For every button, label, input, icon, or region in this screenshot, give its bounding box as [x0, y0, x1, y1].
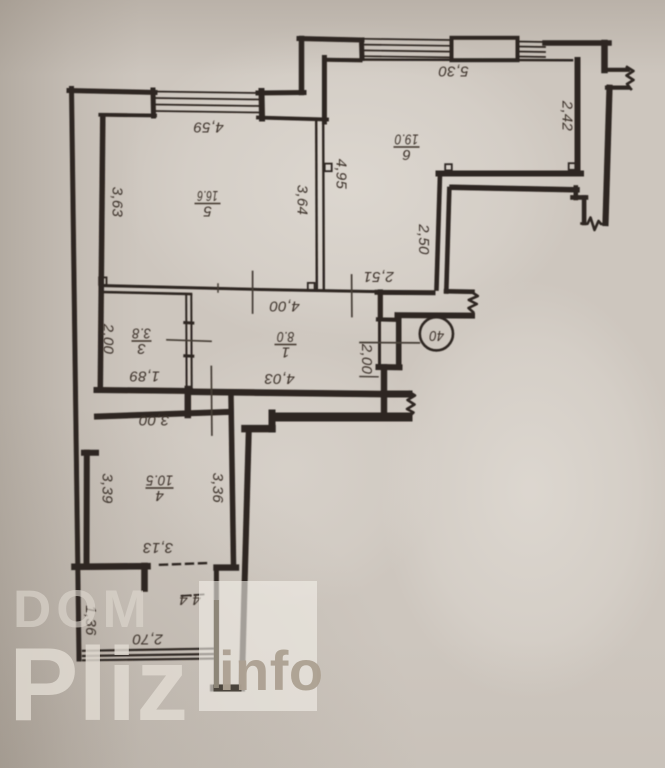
svg-text:Pliz: Pliz: [9, 627, 188, 743]
svg-text:40: 40: [429, 327, 444, 344]
svg-text:3,00: 3,00: [138, 411, 169, 428]
svg-text:2,51: 2,51: [363, 268, 394, 285]
svg-text:2,42: 2,42: [559, 100, 576, 132]
svg-text:1,89: 1,89: [129, 368, 160, 385]
svg-text:info: info: [219, 639, 324, 702]
svg-text:4.4: 4.4: [179, 591, 201, 608]
svg-text:3,39: 3,39: [99, 473, 116, 504]
svg-text:19.0: 19.0: [394, 131, 418, 148]
svg-text:3,36: 3,36: [209, 473, 226, 504]
svg-text:4,59: 4,59: [193, 118, 224, 135]
svg-text:4,00: 4,00: [269, 298, 300, 315]
svg-text:8.0: 8.0: [276, 328, 294, 345]
svg-text:16.6: 16.6: [197, 187, 218, 204]
svg-text:2,00: 2,00: [100, 323, 117, 355]
svg-text:3,63: 3,63: [108, 187, 125, 218]
svg-text:3.8: 3.8: [132, 325, 151, 342]
svg-text:10.5: 10.5: [146, 472, 173, 489]
svg-text:4,95: 4,95: [333, 159, 350, 190]
svg-text:4,03: 4,03: [264, 370, 295, 387]
svg-text:2,00: 2,00: [358, 343, 375, 375]
svg-text:3,13: 3,13: [142, 539, 173, 556]
svg-text:3,64: 3,64: [294, 185, 311, 215]
svg-text:5,30: 5,30: [438, 63, 469, 80]
svg-text:2,50: 2,50: [415, 223, 432, 255]
